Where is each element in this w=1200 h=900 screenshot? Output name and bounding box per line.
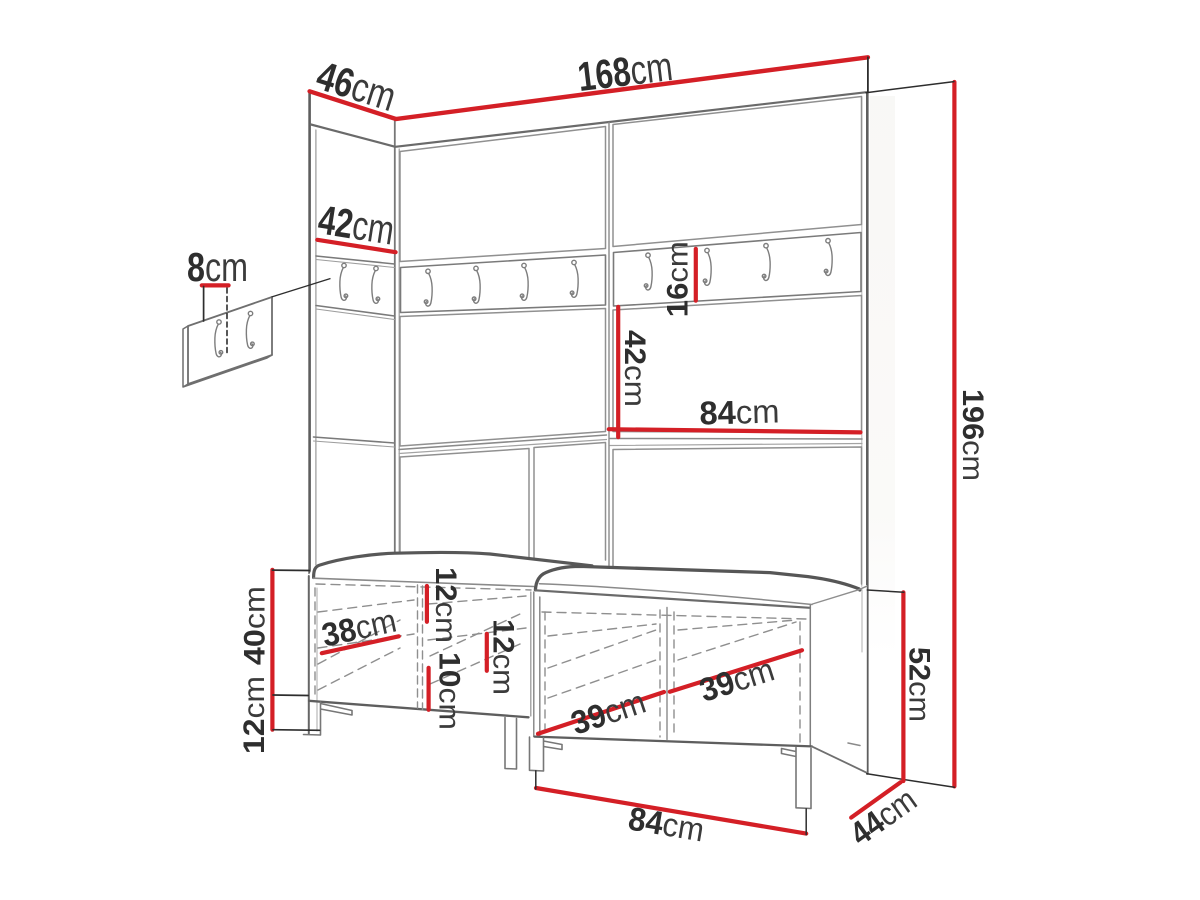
svg-text:12cm: 12cm	[429, 567, 462, 643]
svg-text:16cm: 16cm	[661, 241, 694, 317]
svg-text:10cm: 10cm	[433, 652, 466, 730]
svg-text:52cm: 52cm	[903, 647, 936, 722]
svg-text:12cm: 12cm	[238, 676, 271, 754]
svg-text:84cm: 84cm	[699, 392, 780, 431]
svg-text:40cm: 40cm	[238, 586, 271, 665]
svg-text:196cm: 196cm	[956, 389, 989, 481]
svg-text:42cm: 42cm	[618, 330, 651, 407]
svg-text:12cm: 12cm	[487, 619, 520, 695]
svg-text:8cm: 8cm	[187, 244, 248, 290]
